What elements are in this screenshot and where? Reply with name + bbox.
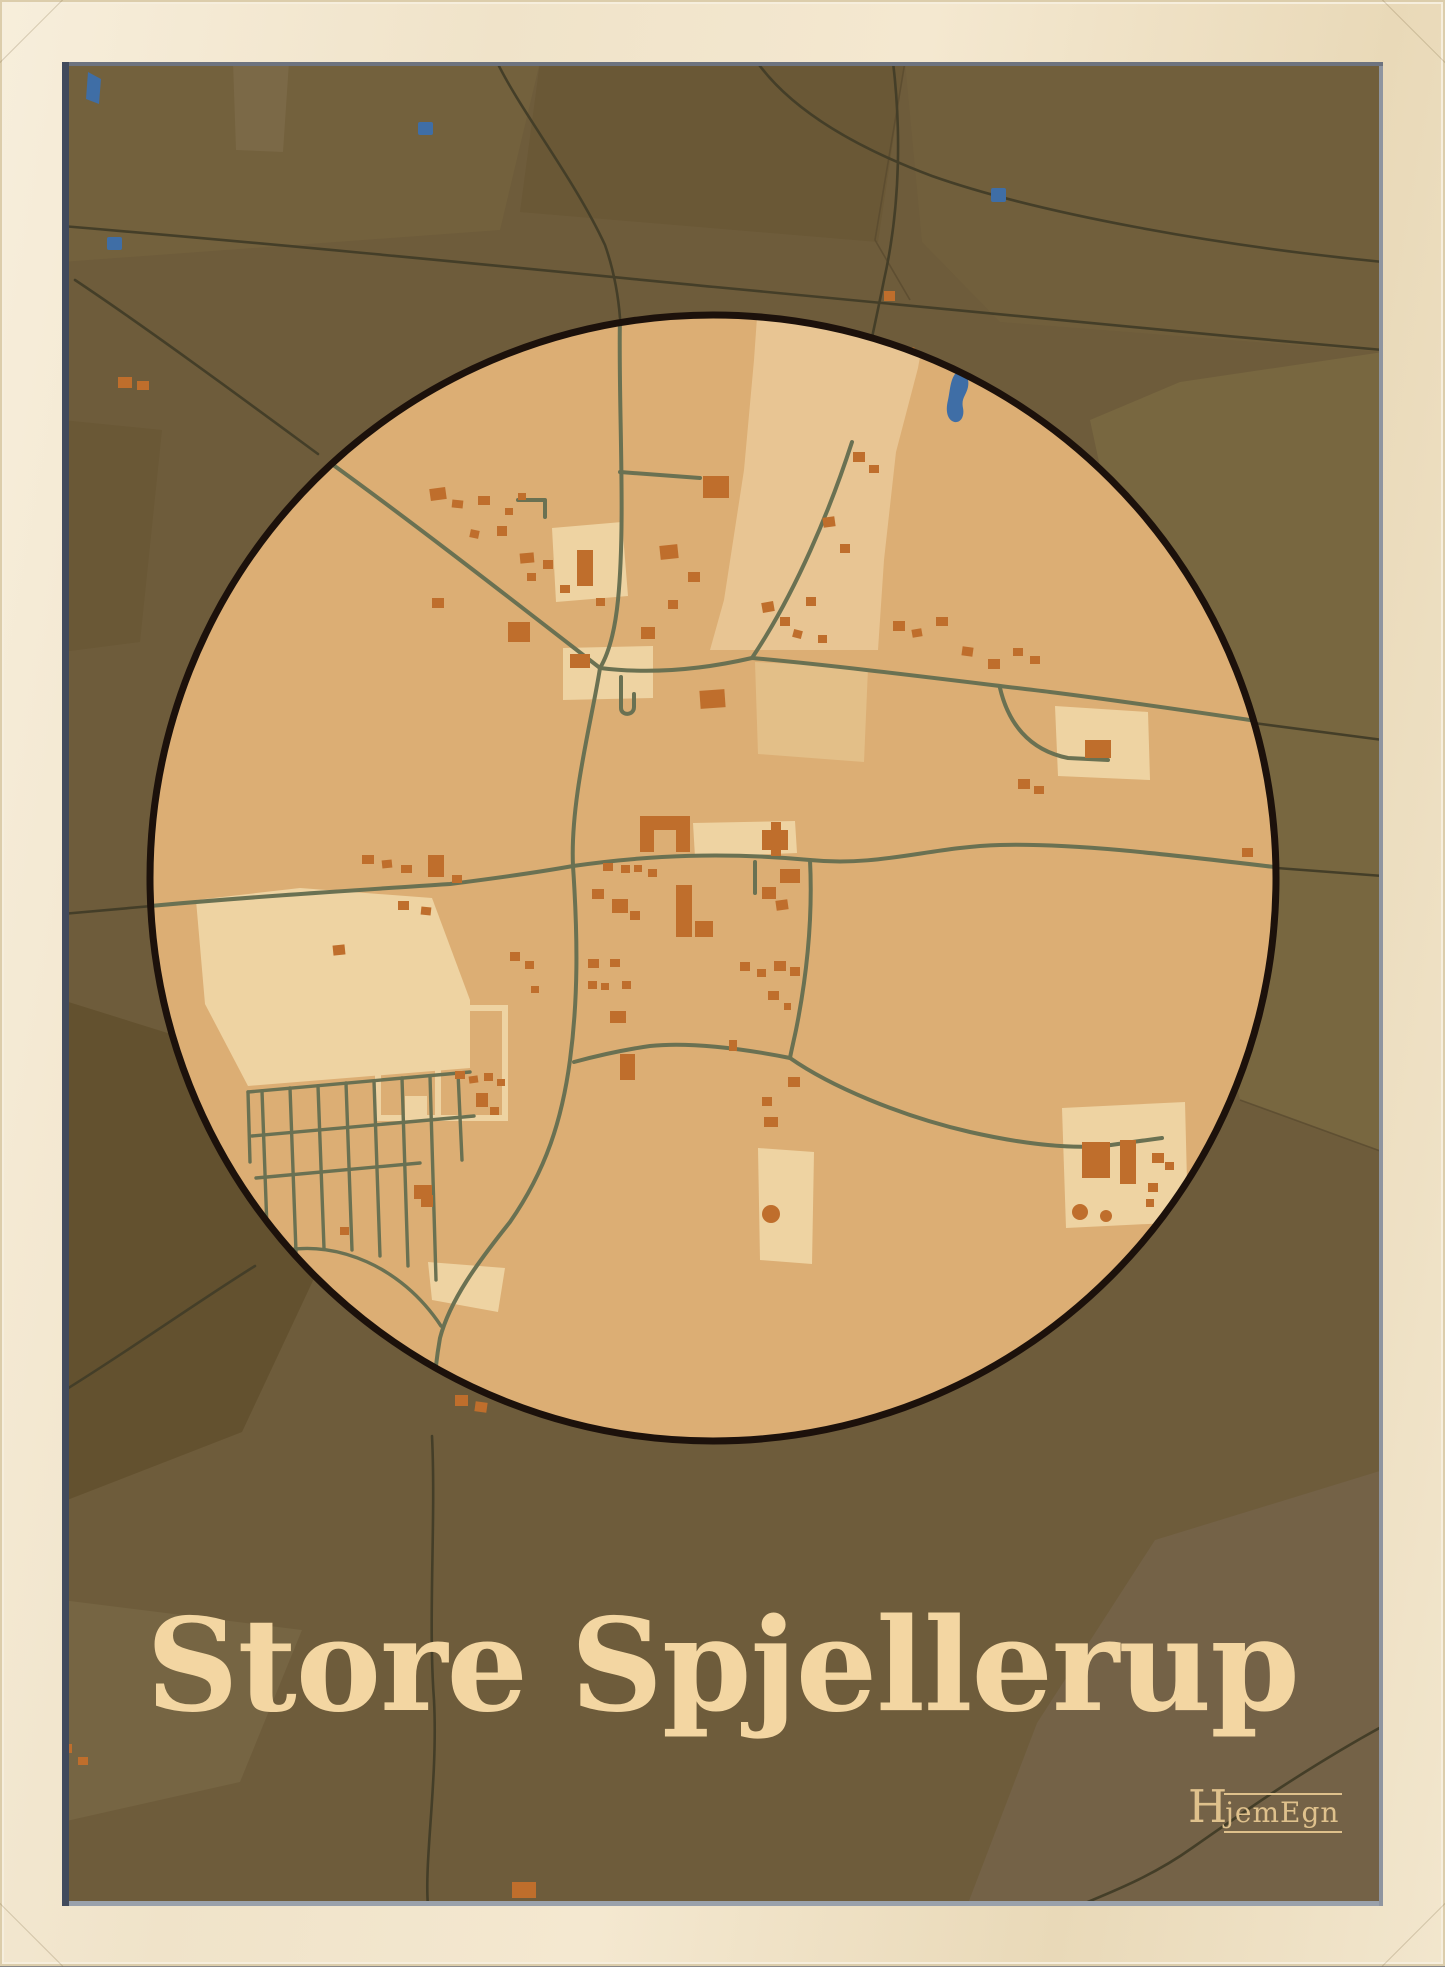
building	[853, 452, 865, 462]
building	[512, 1882, 536, 1898]
building	[1148, 1183, 1158, 1192]
brand-initial: H	[1188, 1780, 1227, 1833]
building	[806, 597, 816, 606]
frame-miter-joint	[1382, 0, 1445, 65]
building	[382, 859, 393, 868]
building	[884, 291, 895, 301]
round-structure	[762, 1205, 780, 1223]
building	[518, 493, 526, 500]
building	[520, 552, 535, 563]
building	[452, 499, 464, 508]
building	[668, 600, 678, 609]
building	[762, 1097, 772, 1106]
frame-miter-joint	[0, 1901, 63, 1967]
building	[476, 1093, 488, 1107]
building	[510, 952, 520, 961]
brand-name: jemEgn	[1224, 1793, 1342, 1833]
poster-art: Store Spjellerup HjemEgn	[62, 62, 1383, 1906]
building	[469, 1075, 479, 1083]
building	[603, 863, 613, 871]
building	[1152, 1153, 1164, 1163]
building	[740, 962, 750, 971]
building	[703, 476, 729, 498]
building	[1146, 1199, 1154, 1207]
building	[333, 944, 346, 955]
round-structure	[1100, 1210, 1112, 1222]
building	[774, 961, 786, 971]
building	[478, 496, 490, 505]
building	[474, 1401, 487, 1413]
building	[362, 855, 374, 864]
round-structure	[1072, 1204, 1088, 1220]
frame-miter-joint	[0, 0, 63, 65]
building	[455, 1395, 468, 1406]
building	[790, 967, 800, 976]
building	[577, 550, 593, 586]
building	[560, 585, 570, 593]
building	[699, 689, 725, 709]
building	[421, 906, 432, 915]
building	[822, 516, 835, 528]
building	[484, 1073, 493, 1081]
building	[630, 911, 640, 920]
brand-logo: HjemEgn	[1188, 1784, 1342, 1829]
building	[340, 1227, 349, 1235]
building	[762, 887, 776, 899]
building	[490, 1107, 499, 1115]
wooden-frame: Store Spjellerup HjemEgn	[0, 0, 1445, 1966]
building	[62, 1744, 72, 1753]
building	[543, 560, 553, 569]
building	[729, 1040, 737, 1051]
building	[401, 865, 412, 873]
building	[768, 991, 779, 1000]
frame-miter-joint	[1382, 1901, 1445, 1967]
building	[764, 1117, 778, 1127]
poster-title: Store Spjellerup	[62, 1602, 1383, 1730]
building	[1165, 1162, 1174, 1170]
building	[780, 617, 790, 626]
building	[620, 1054, 635, 1080]
building	[688, 572, 700, 582]
building	[497, 526, 507, 536]
building	[610, 1011, 626, 1023]
building	[621, 865, 630, 873]
building	[911, 628, 922, 638]
building	[455, 1071, 465, 1079]
building	[1085, 740, 1111, 758]
building	[695, 921, 713, 937]
building	[527, 573, 536, 581]
building	[1013, 648, 1023, 656]
building	[525, 961, 534, 969]
building	[432, 598, 444, 608]
building	[869, 465, 879, 473]
building	[508, 622, 530, 642]
building	[936, 617, 948, 626]
building	[641, 627, 655, 639]
building	[988, 659, 1000, 669]
building	[398, 901, 409, 910]
building	[497, 1079, 505, 1086]
building	[1082, 1142, 1110, 1178]
building	[676, 885, 692, 937]
building	[588, 959, 599, 968]
building	[788, 1077, 800, 1087]
framed-poster: Store Spjellerup HjemEgn	[0, 0, 1445, 1966]
building	[78, 1757, 88, 1765]
building	[505, 508, 513, 515]
building	[818, 635, 827, 643]
building	[612, 899, 628, 913]
building	[588, 981, 597, 989]
building	[429, 487, 447, 501]
building	[601, 983, 609, 990]
building	[452, 875, 462, 883]
building	[634, 865, 642, 872]
building	[118, 377, 132, 388]
building	[775, 899, 788, 911]
building	[1018, 779, 1030, 789]
building	[610, 959, 620, 967]
building	[659, 544, 678, 560]
building	[421, 1195, 433, 1207]
building	[596, 598, 605, 606]
building	[893, 621, 905, 631]
building	[1030, 656, 1040, 664]
building	[840, 544, 850, 553]
building	[622, 981, 631, 989]
building	[570, 654, 590, 668]
building	[780, 869, 800, 883]
building	[1034, 786, 1044, 794]
building	[771, 822, 781, 856]
building	[784, 1003, 791, 1010]
building	[137, 381, 149, 390]
building	[757, 969, 766, 977]
building	[592, 889, 604, 899]
building	[961, 646, 973, 656]
building	[648, 869, 657, 877]
building	[761, 601, 775, 613]
building	[531, 986, 539, 993]
building	[1120, 1140, 1136, 1184]
building	[428, 855, 444, 877]
building	[1242, 848, 1253, 857]
